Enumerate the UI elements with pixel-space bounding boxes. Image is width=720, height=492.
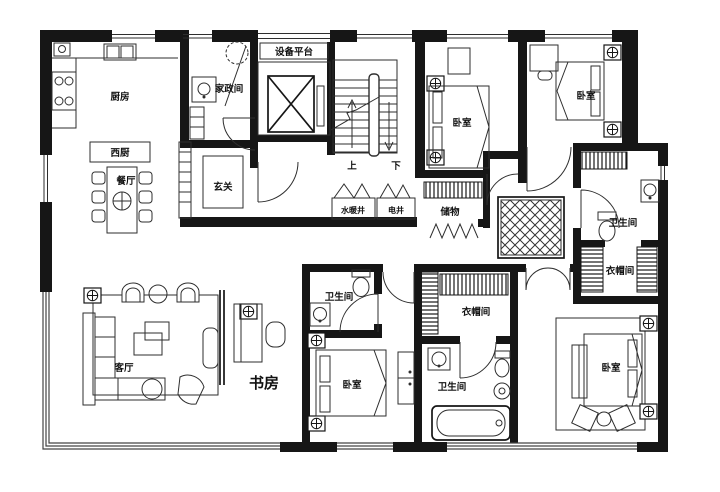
stair-rail [369,74,379,156]
nightstand-icon [308,333,325,348]
room-label-bedroom-bottom-middle: 卧室 [342,379,362,391]
chair-icon [572,405,599,432]
nightstand-icon [427,76,444,91]
sink-icon [310,303,330,326]
chair-icon [609,405,636,432]
bedroom-top-middle-furniture [427,48,489,168]
armchair-icon [122,283,144,302]
small-table-icon [597,412,611,426]
storage-shelf-icon [424,182,482,198]
cloakroom-bottom-furniture [418,272,508,334]
stairs-up-label: 上 [347,160,357,172]
study-furniture [234,304,285,362]
floor-plan-drawing: 厨房 西厨 餐厅 家政间 设备平台 玄关 上 下 水暖井 电井 储物 卧室 卧室… [0,0,720,492]
room-label-bedroom-top-right: 卧室 [576,90,596,102]
room-label-living-room: 客厅 [113,362,134,374]
radiator-icon [577,152,627,169]
room-label-storage: 储物 [440,206,460,218]
ottoman-icon [142,379,162,399]
desk-chair-icon [266,322,285,347]
room-label-bedroom-bottom-right: 卧室 [601,362,621,374]
room-label-bedroom-top-middle: 卧室 [452,117,472,129]
entry-door-arc [258,162,298,202]
side-table-icon [149,285,167,303]
room-label-study: 书房 [249,374,279,392]
bedroom4-double-door-right-arc [548,268,570,290]
room-label-plumbing-shaft: 水暖井 [340,205,365,215]
washer-icon [226,42,248,64]
wardrobe-icon [418,272,438,334]
room-label-housekeeping: 家政间 [215,83,244,95]
bedroom3-door-arc [383,272,414,303]
down-arrow-icon [385,102,393,150]
shelf-icon [179,142,191,218]
room-label-bathroom-right: 卫生间 [609,217,638,229]
stairs [331,60,397,156]
wardrobe-icon [637,247,657,292]
tv-panel [220,290,224,385]
nightstand-icon [604,122,621,137]
room-label-electrical-shaft: 电井 [388,205,404,215]
room-label-west-kitchen: 西厨 [110,148,130,159]
bathroom-bottom-fixtures [428,348,510,440]
lounge-chair-icon [178,375,204,404]
bedroom1-door-arc [527,147,571,191]
hall-rug [498,197,564,258]
room-label-equipment-platform: 设备平台 [275,46,314,58]
wardrobe-icon [581,247,603,292]
plant-icon [240,304,257,319]
storage-closet [424,182,482,198]
stairs-down-label: 下 [391,161,401,172]
wardrobe-icon [440,274,508,295]
room-label-cloakroom-right: 衣帽间 [606,265,635,277]
nightstand-icon [640,404,657,419]
kitchen-furniture [52,43,178,128]
lattice-rug-icon [501,200,561,255]
up-arrow-icon [348,100,356,148]
desk-icon [448,48,470,74]
stove-icon [52,72,76,110]
room-label-kitchen: 厨房 [110,91,129,103]
bathroom-right-fixtures [598,180,659,241]
coffee-table-icon [145,322,169,340]
desk-icon [530,45,558,71]
room-label-bathroom-mid: 卫生间 [325,291,354,303]
bathroom3-door-arc [460,342,496,378]
storage-folding-door [430,224,478,238]
nightstand-icon [604,45,621,60]
armchair-icon [177,283,199,302]
plant-table-icon [84,288,101,303]
bidet-icon [494,383,510,399]
dining-furniture [90,142,191,233]
room-label-foyer: 玄关 [213,181,233,193]
floor-plan-canvas: 厨房 西厨 餐厅 家政间 设备平台 玄关 上 下 水暖井 电井 储物 卧室 卧室… [0,0,720,492]
living-room-furniture [83,283,224,405]
nightstand-icon [640,316,657,331]
tv-cabinet-icon [203,328,218,368]
room-label-cloakroom-bottom: 衣帽间 [462,306,491,318]
coffee-table-icon [134,333,162,355]
room-label-bathroom-bottom: 卫生间 [438,381,467,393]
nightstand-icon [308,416,325,431]
room-label-dining: 餐厅 [115,175,136,187]
toilet-icon [495,351,510,358]
bedroom4-double-door-left-arc [526,268,548,290]
